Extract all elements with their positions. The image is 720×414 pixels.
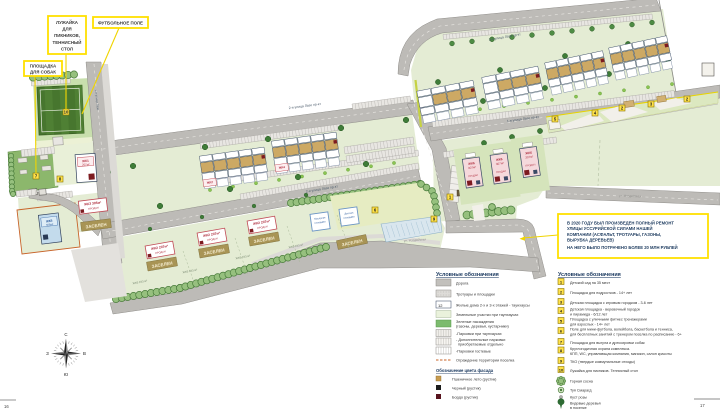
svg-text:для взрослых - 14+ лет: для взрослых - 14+ лет: [570, 322, 610, 326]
svg-text:Видовые деревья: Видовые деревья: [570, 402, 601, 406]
svg-text:Черный (рустик): Черный (рустик): [452, 387, 481, 391]
svg-text:В 2020 ГОДУ БЫЛ ПРОИЗВЕДЕН ПОЛ: В 2020 ГОДУ БЫЛ ПРОИЗВЕДЕН ПОЛНЫЙ РЕМОНТ: [567, 221, 674, 226]
svg-text:-Парковки гостевые: -Парковки гостевые: [456, 350, 491, 354]
svg-text:КОМПАНИИ (АСФАЛЬТ, ТРОТУАРЫ, Г: КОМПАНИИ (АСФАЛЬТ, ТРОТУАРЫ, ГАЗОНЫ,: [567, 232, 661, 237]
svg-text:С: С: [64, 332, 67, 337]
svg-text:10: 10: [559, 367, 564, 372]
svg-text:Поле для мини-футбола, волейбо: Поле для мини-футбола, волейбола, баскет…: [570, 328, 673, 332]
svg-text:Бордо (рустик): Бордо (рустик): [452, 396, 479, 400]
svg-text:-Парковки при таунхаусах: -Парковки при таунхаусах: [456, 332, 502, 336]
svg-text:для бесплатных занятий с трен: для бесплатных занятий с тренером поселк…: [570, 332, 682, 336]
svg-text:Детская площадка с игровым гор: Детская площадка с игровым городком - 3-…: [570, 301, 653, 305]
svg-text:Горная сосна: Горная сосна: [570, 380, 594, 384]
svg-text:12: 12: [438, 303, 443, 308]
svg-text:ЛУЖАЙКА: ЛУЖАЙКА: [56, 20, 79, 25]
svg-text:Ю: Ю: [64, 372, 69, 377]
svg-text:Обозначение цвета фасада: Обозначение цвета фасада: [436, 368, 494, 373]
svg-text:СТОЛ: СТОЛ: [61, 46, 73, 51]
svg-text:ФУТБОЛЬНОЕ ПОЛЕ: ФУТБОЛЬНОЕ ПОЛЕ: [98, 21, 143, 26]
svg-text:- Дополнительные парковки: - Дополнительные парковки: [456, 338, 505, 342]
svg-text:17: 17: [700, 403, 705, 408]
svg-text:В: В: [83, 351, 86, 356]
svg-text:Тротуары и площадки: Тротуары и площадки: [456, 293, 495, 297]
svg-text:10: 10: [64, 110, 69, 115]
svg-text:Условные обозначения: Условные обозначения: [436, 271, 499, 278]
svg-text:КПП, WC, управляющая компания,: КПП, WC, управляющая компания, магазин, …: [570, 352, 672, 356]
svg-text:ПИКНИКОВ,: ПИКНИКОВ,: [54, 33, 80, 38]
svg-text:Детский сад на 35 мест: Детский сад на 35 мест: [570, 281, 610, 285]
svg-text:Условные обозначения: Условные обозначения: [558, 271, 621, 278]
svg-text:Детская площадка - веревочный: Детская площадка - веревочный городок: [570, 308, 640, 312]
svg-text:Площадка с уличными фитнес тре: Площадка с уличными фитнес тренажерами: [570, 318, 647, 322]
svg-text:ДЛЯ: ДЛЯ: [62, 27, 71, 32]
svg-text:Дорога: Дорога: [456, 282, 469, 286]
svg-text:Туя Смарагд: Туя Смарагд: [570, 389, 592, 393]
svg-text:Круглогодичная охрана комплекс: Круглогодичная охрана комплекса.: [570, 347, 630, 351]
svg-text:Куст розы: Куст розы: [570, 396, 587, 400]
svg-text:НА НЕГО БЫЛО ПОТРАЧЕНО БОЛЕЕ 2: НА НЕГО БЫЛО ПОТРАЧЕНО БОЛЕЕ 20 МЛН РУБЛ…: [567, 245, 678, 250]
svg-text:УЛИЦЫ УССУРИЙСКОЙ СИЛАМИ НАШЕЙ: УЛИЦЫ УССУРИЙСКОЙ СИЛАМИ НАШЕЙ: [567, 226, 652, 231]
svg-text:Площадка для подростков - 14+: Площадка для подростков - 14+ лет: [570, 291, 632, 295]
svg-text:ТЕННИСНЫЙ: ТЕННИСНЫЙ: [53, 40, 82, 45]
svg-text:ул. Уссурийская: ул. Уссурийская: [619, 194, 642, 199]
svg-text:ПЛОЩАДКА: ПЛОЩАДКА: [30, 64, 57, 69]
svg-text:Зеленые насаждения: Зеленые насаждения: [456, 320, 494, 324]
svg-text:(газоны, деревья, кустарники): (газоны, деревья, кустарники): [456, 325, 509, 329]
svg-text:Ограждение территории поселка: Ограждение территории поселка: [456, 359, 515, 363]
svg-text:Земельные участки при таунхаус: Земельные участки при таунхаусах: [456, 313, 519, 317]
svg-text:207м²: 207м²: [82, 162, 90, 167]
svg-text:Жилые дома 2-х и 3-х этажей -: Жилые дома 2-х и 3-х этажей - таунхаусы: [456, 304, 530, 308]
svg-text:Пшеничное лето (рустик): Пшеничное лето (рустик): [452, 378, 497, 382]
svg-text:и пирамида - 6/12 лет: и пирамида - 6/12 лет: [570, 312, 608, 316]
svg-text:16: 16: [4, 404, 9, 409]
svg-text:ТКО (твердые коммунальные отхо: ТКО (твердые коммунальные отходы): [570, 360, 635, 364]
svg-text:З: З: [46, 351, 49, 356]
svg-text:в поселке: в поселке: [570, 406, 587, 410]
svg-text:ДЛЯ СОБАК: ДЛЯ СОБАК: [30, 70, 56, 75]
svg-text:приобретаемые отдельно: приобретаемые отдельно: [458, 343, 503, 347]
svg-text:Лужайка для пикников. Теннисны: Лужайка для пикников. Теннисный стол: [570, 369, 638, 373]
svg-text:ВЫРУБКА ДЕРЕВЬЕВ): ВЫРУБКА ДЕРЕВЬЕВ): [567, 238, 614, 243]
svg-text:Площадка для выгула и дрессиро: Площадка для выгула и дрессировки собак: [570, 341, 645, 345]
